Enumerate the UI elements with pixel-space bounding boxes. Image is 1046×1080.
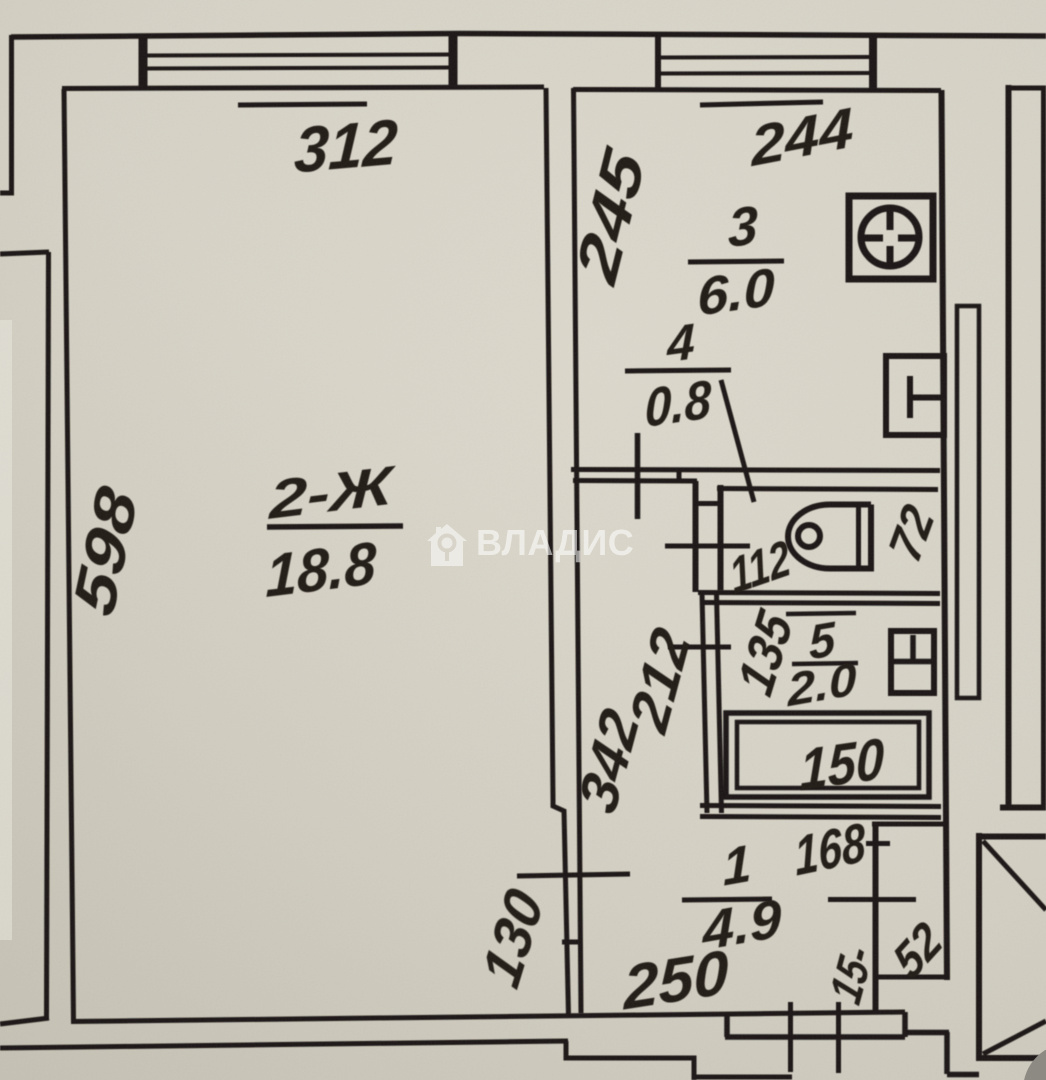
svg-text:ВЛАДИС: ВЛАДИС [476, 522, 634, 563]
